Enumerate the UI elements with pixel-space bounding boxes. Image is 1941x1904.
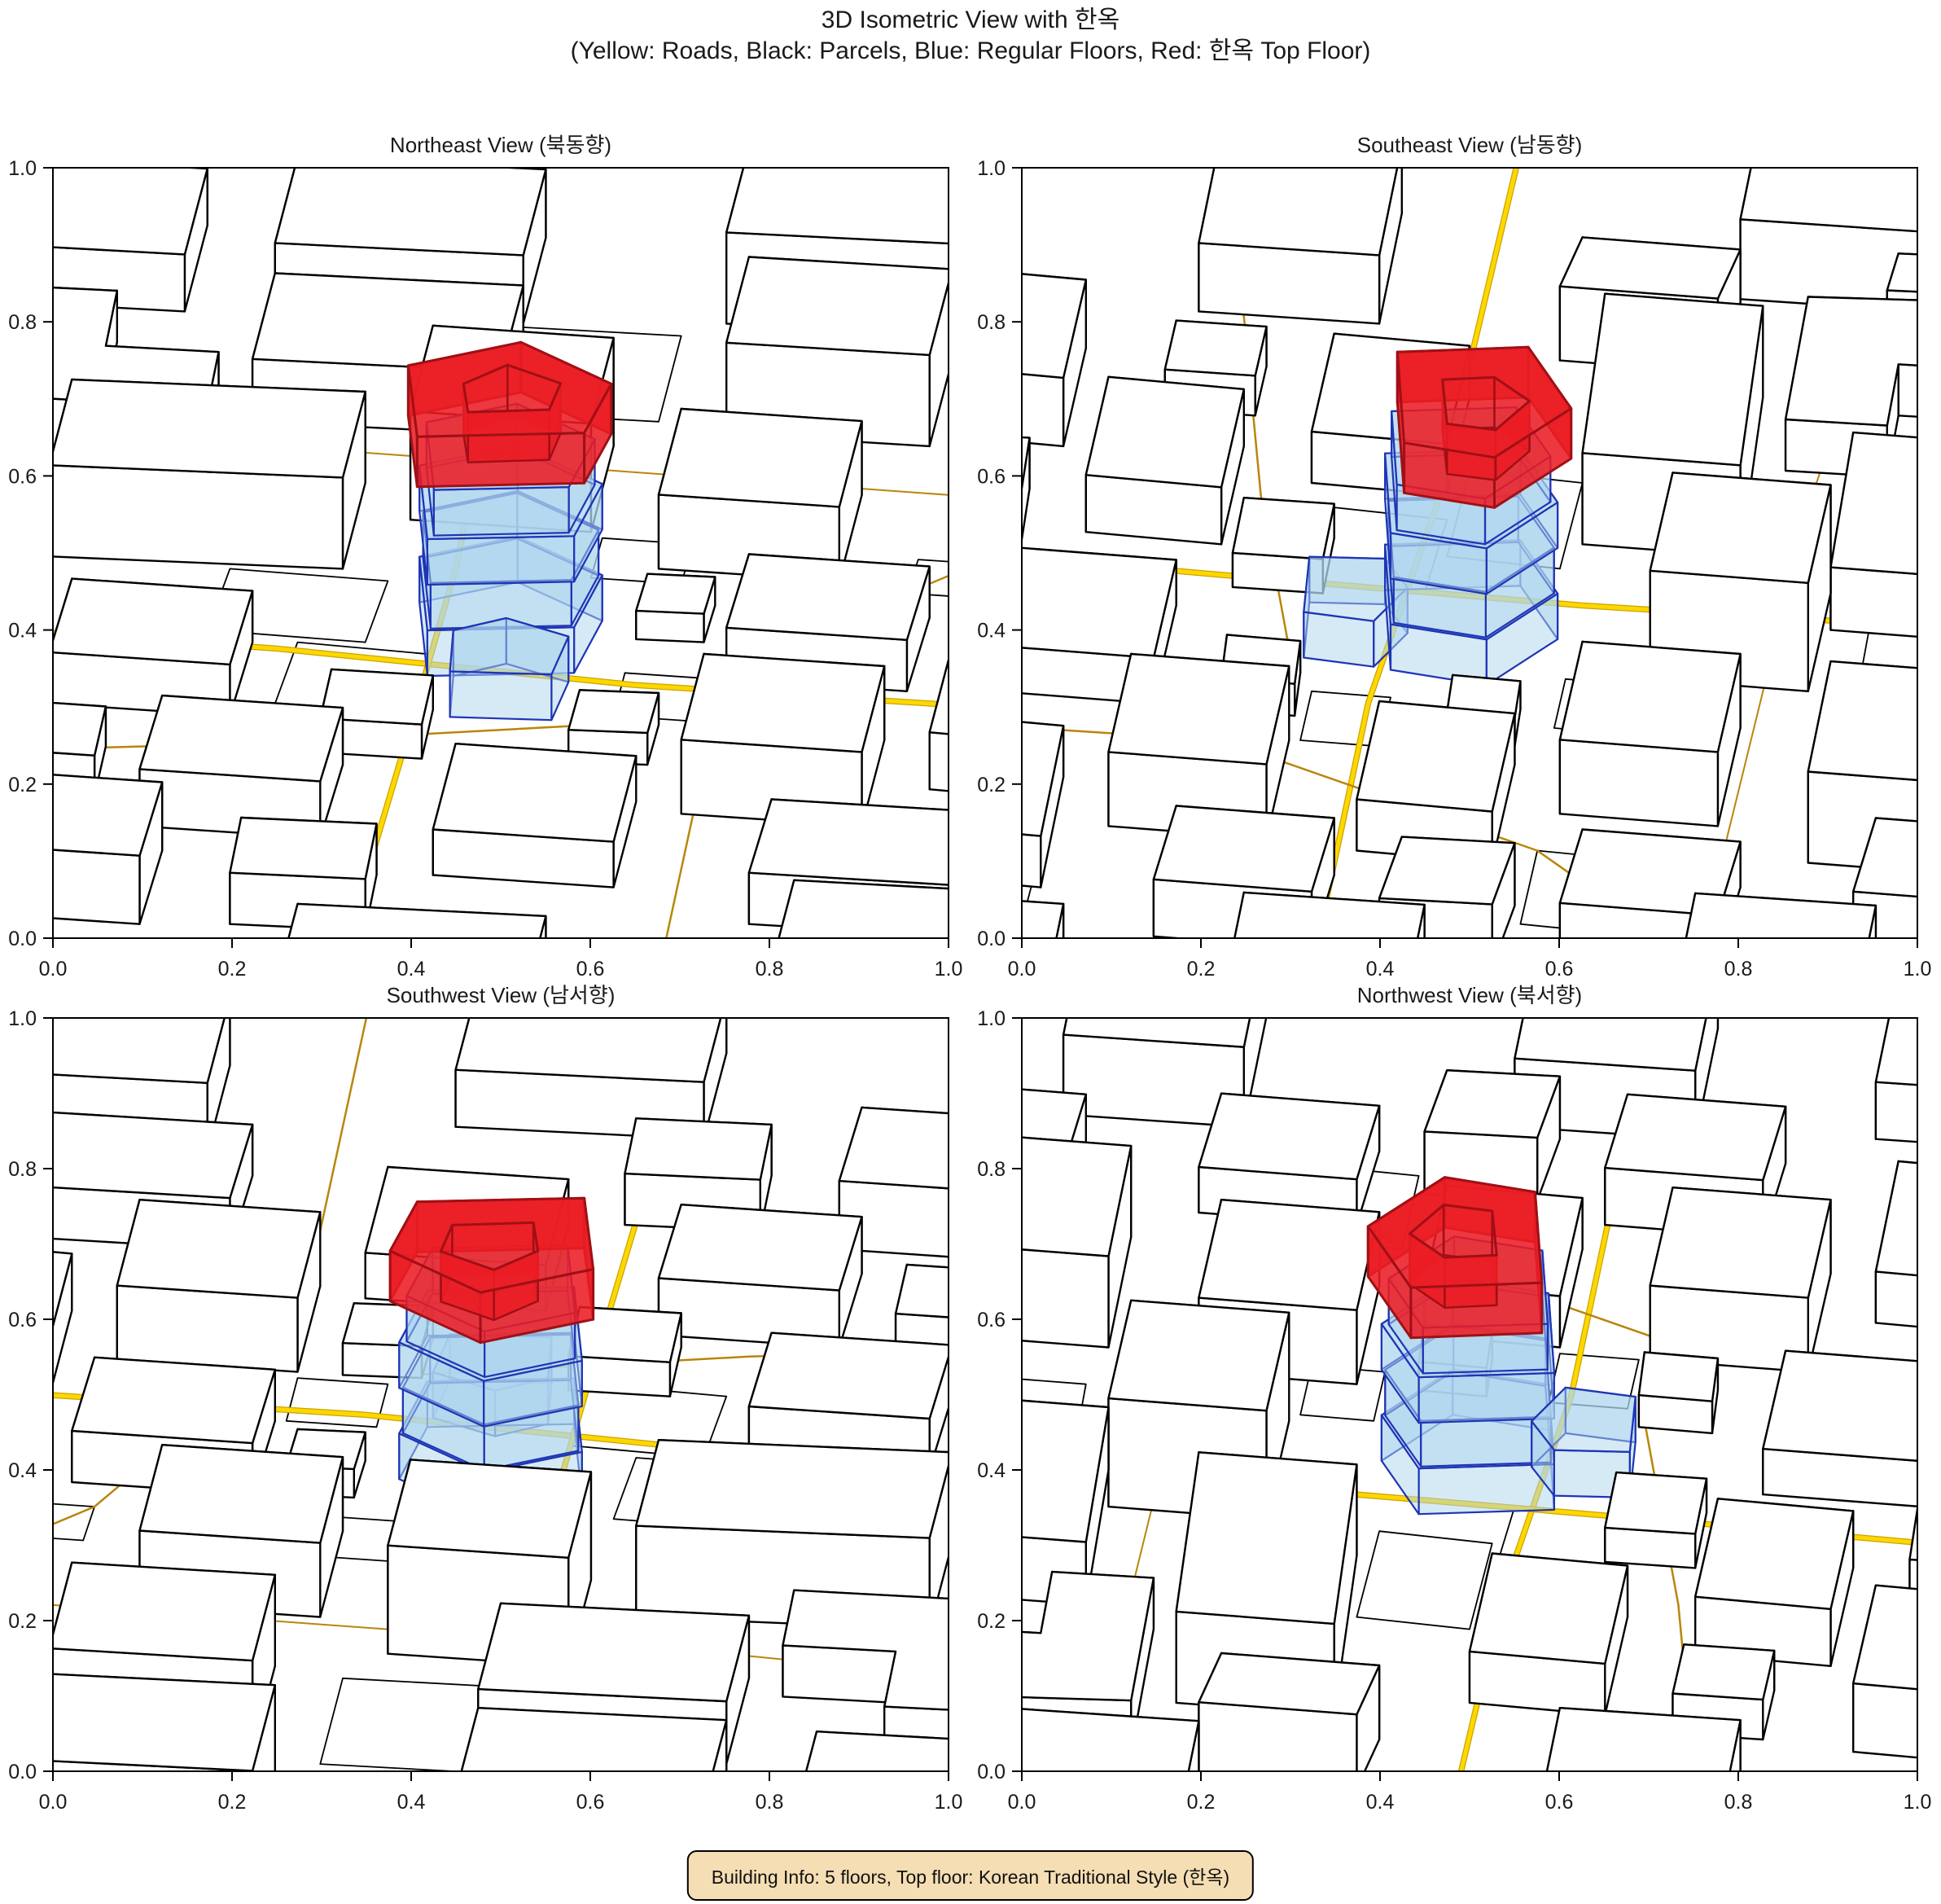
scene-canvas-southwest: 0.00.00.20.20.40.40.60.60.80.81.01.0 [53, 1018, 949, 1771]
x-tick-label: 1.0 [1904, 1791, 1932, 1814]
subplot-southwest: 0.00.00.20.20.40.40.60.60.80.81.01.0 [53, 1018, 949, 1771]
x-tick-label: 0.4 [397, 1791, 426, 1814]
y-tick-label: 0.2 [977, 774, 1006, 796]
y-tick-label: 0.4 [977, 1459, 1006, 1482]
y-tick-label: 0.0 [977, 928, 1006, 950]
subplot-northwest: 0.00.00.20.20.40.40.60.60.80.81.01.0 [1022, 1018, 1917, 1771]
scene-canvas-northeast: 0.00.00.20.20.40.40.60.60.80.81.01.0 [53, 168, 949, 938]
subplot-title-northwest: Northwest View (북서향) [1022, 979, 1917, 1007]
x-tick-label: 0.0 [39, 958, 68, 981]
x-tick-label: 0.4 [1366, 958, 1395, 981]
y-tick-label: 0.0 [8, 928, 37, 950]
x-tick-label: 0.8 [756, 958, 784, 981]
y-tick-label: 0.6 [977, 1309, 1006, 1331]
x-tick-label: 0.4 [1366, 1791, 1395, 1814]
building-info-box: Building Info: 5 floors, Top floor: Kore… [687, 1850, 1254, 1901]
subplot-southeast: 0.00.00.20.20.40.40.60.60.80.81.01.0 [1022, 168, 1917, 938]
x-tick-label: 0.6 [1545, 958, 1574, 981]
y-tick-label: 0.6 [977, 465, 1006, 488]
x-tick-label: 0.0 [1008, 1791, 1036, 1814]
y-tick-label: 0.2 [8, 774, 37, 796]
y-tick-label: 0.2 [977, 1610, 1006, 1633]
x-tick-label: 0.2 [1187, 1791, 1216, 1814]
figure-subtitle: (Yellow: Roads, Black: Parcels, Blue: Re… [0, 37, 1941, 65]
figure-title: 3D Isometric View with 한옥 [0, 7, 1941, 34]
y-tick-label: 0.8 [977, 311, 1006, 334]
x-tick-label: 1.0 [1904, 958, 1932, 981]
y-tick-label: 1.0 [8, 157, 37, 180]
y-tick-label: 0.6 [8, 465, 37, 488]
y-tick-label: 0.8 [8, 1158, 37, 1181]
y-tick-label: 0.8 [977, 1158, 1006, 1181]
y-tick-label: 0.6 [8, 1309, 37, 1331]
subplot-northeast: 0.00.00.20.20.40.40.60.60.80.81.01.0 [53, 168, 949, 938]
x-tick-label: 0.4 [397, 958, 426, 981]
x-tick-label: 0.0 [1008, 958, 1036, 981]
subplot-title-southwest: Southwest View (남서향) [53, 979, 949, 1007]
y-tick-label: 1.0 [8, 1007, 37, 1030]
y-tick-label: 1.0 [977, 157, 1006, 180]
x-tick-label: 0.6 [1545, 1791, 1574, 1814]
x-tick-label: 0.2 [218, 1791, 247, 1814]
x-tick-label: 0.2 [218, 958, 247, 981]
y-tick-label: 0.8 [8, 311, 37, 334]
y-tick-label: 0.2 [8, 1610, 37, 1633]
x-tick-label: 0.8 [1724, 1791, 1753, 1814]
x-tick-label: 1.0 [935, 1791, 963, 1814]
building-info-text: Building Info: 5 floors, Top floor: Kore… [712, 1867, 1229, 1888]
y-tick-label: 0.4 [977, 620, 1006, 643]
subplot-title-southeast: Southeast View (남동향) [1022, 129, 1917, 156]
x-tick-label: 0.2 [1187, 958, 1216, 981]
x-tick-label: 0.8 [1724, 958, 1753, 981]
x-tick-label: 0.6 [576, 1791, 605, 1814]
subplot-title-northeast: Northeast View (북동향) [53, 129, 949, 156]
y-tick-label: 0.4 [8, 1459, 37, 1482]
scene-canvas-northwest: 0.00.00.20.20.40.40.60.60.80.81.01.0 [1022, 1018, 1917, 1771]
x-tick-label: 0.8 [756, 1791, 784, 1814]
x-tick-label: 0.6 [576, 958, 605, 981]
y-tick-label: 0.0 [8, 1761, 37, 1783]
scene-canvas-southeast: 0.00.00.20.20.40.40.60.60.80.81.01.0 [1022, 168, 1917, 938]
y-tick-label: 0.4 [8, 620, 37, 643]
x-tick-label: 0.0 [39, 1791, 68, 1814]
y-tick-label: 0.0 [977, 1761, 1006, 1783]
y-tick-label: 1.0 [977, 1007, 1006, 1030]
x-tick-label: 1.0 [935, 958, 963, 981]
